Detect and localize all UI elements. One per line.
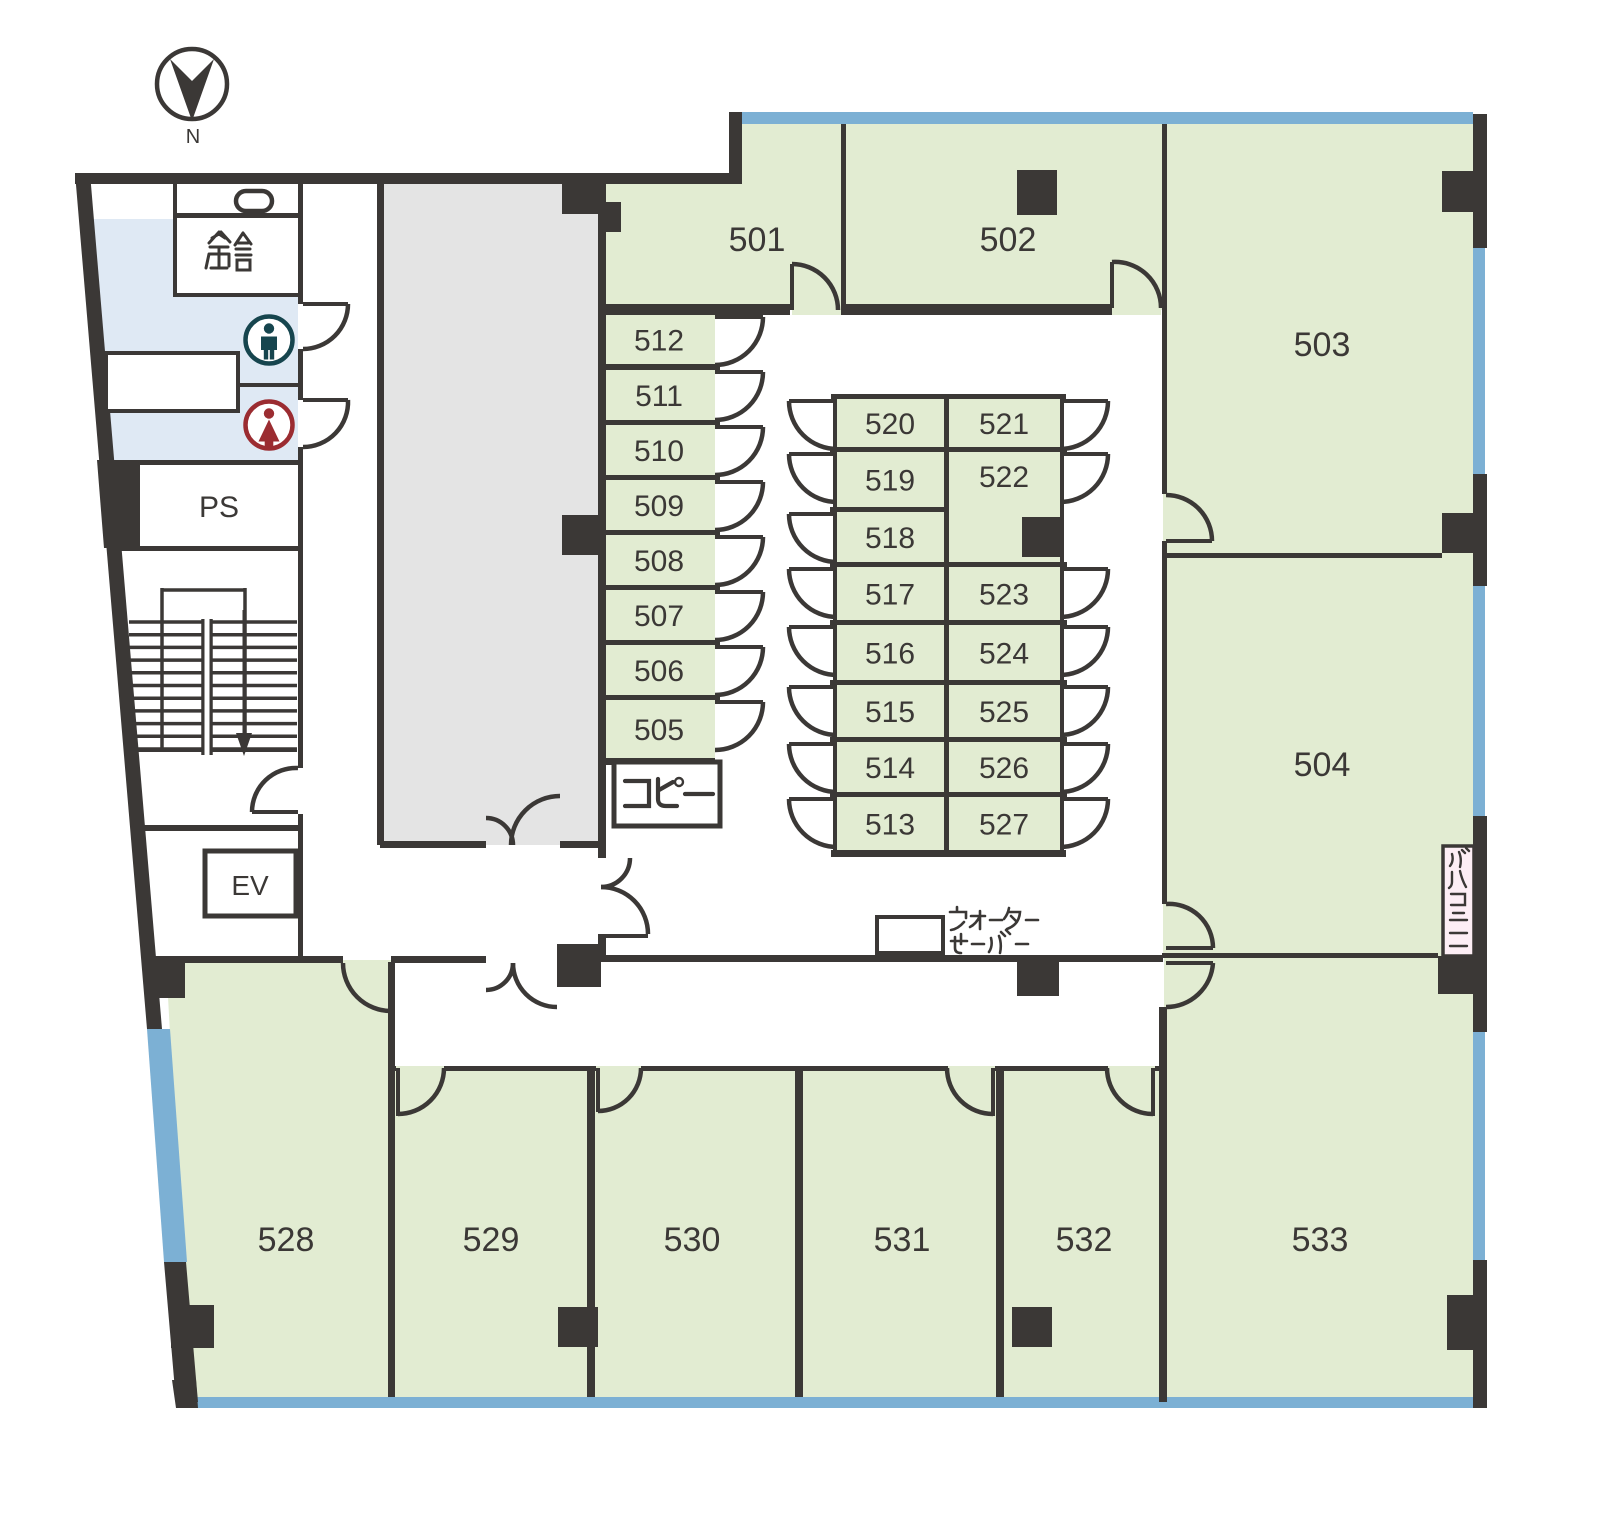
svg-text:525: 525 xyxy=(979,696,1029,729)
svg-text:514: 514 xyxy=(865,752,915,785)
svg-text:511: 511 xyxy=(635,380,683,413)
svg-text:507: 507 xyxy=(634,600,684,633)
svg-text:512: 512 xyxy=(634,325,684,358)
svg-text:516: 516 xyxy=(865,638,915,671)
svg-text:518: 518 xyxy=(865,522,915,555)
svg-text:526: 526 xyxy=(979,752,1029,785)
svg-text:515: 515 xyxy=(865,696,915,729)
svg-text:531: 531 xyxy=(874,1221,931,1259)
svg-text:N: N xyxy=(186,126,200,148)
svg-text:505: 505 xyxy=(634,714,684,747)
svg-text:519: 519 xyxy=(865,465,915,498)
svg-text:521: 521 xyxy=(979,408,1029,441)
svg-text:PS: PS xyxy=(199,491,239,524)
svg-text:523: 523 xyxy=(979,579,1029,612)
svg-text:522: 522 xyxy=(979,461,1029,494)
svg-text:501: 501 xyxy=(729,221,786,259)
svg-text:517: 517 xyxy=(865,579,915,612)
svg-text:533: 533 xyxy=(1292,1221,1349,1259)
svg-text:513: 513 xyxy=(865,809,915,842)
svg-text:532: 532 xyxy=(1056,1221,1113,1259)
svg-text:508: 508 xyxy=(634,545,684,578)
svg-text:EV: EV xyxy=(231,870,269,901)
svg-text:524: 524 xyxy=(979,638,1029,671)
svg-text:502: 502 xyxy=(980,221,1037,259)
svg-text:530: 530 xyxy=(664,1221,721,1259)
svg-text:504: 504 xyxy=(1294,746,1351,784)
svg-text:510: 510 xyxy=(634,435,684,468)
svg-text:506: 506 xyxy=(634,655,684,688)
svg-text:503: 503 xyxy=(1294,326,1351,364)
svg-text:528: 528 xyxy=(258,1221,315,1259)
svg-text:509: 509 xyxy=(634,490,684,523)
svg-text:529: 529 xyxy=(463,1221,520,1259)
svg-text:527: 527 xyxy=(979,809,1029,842)
svg-text:520: 520 xyxy=(865,408,915,441)
